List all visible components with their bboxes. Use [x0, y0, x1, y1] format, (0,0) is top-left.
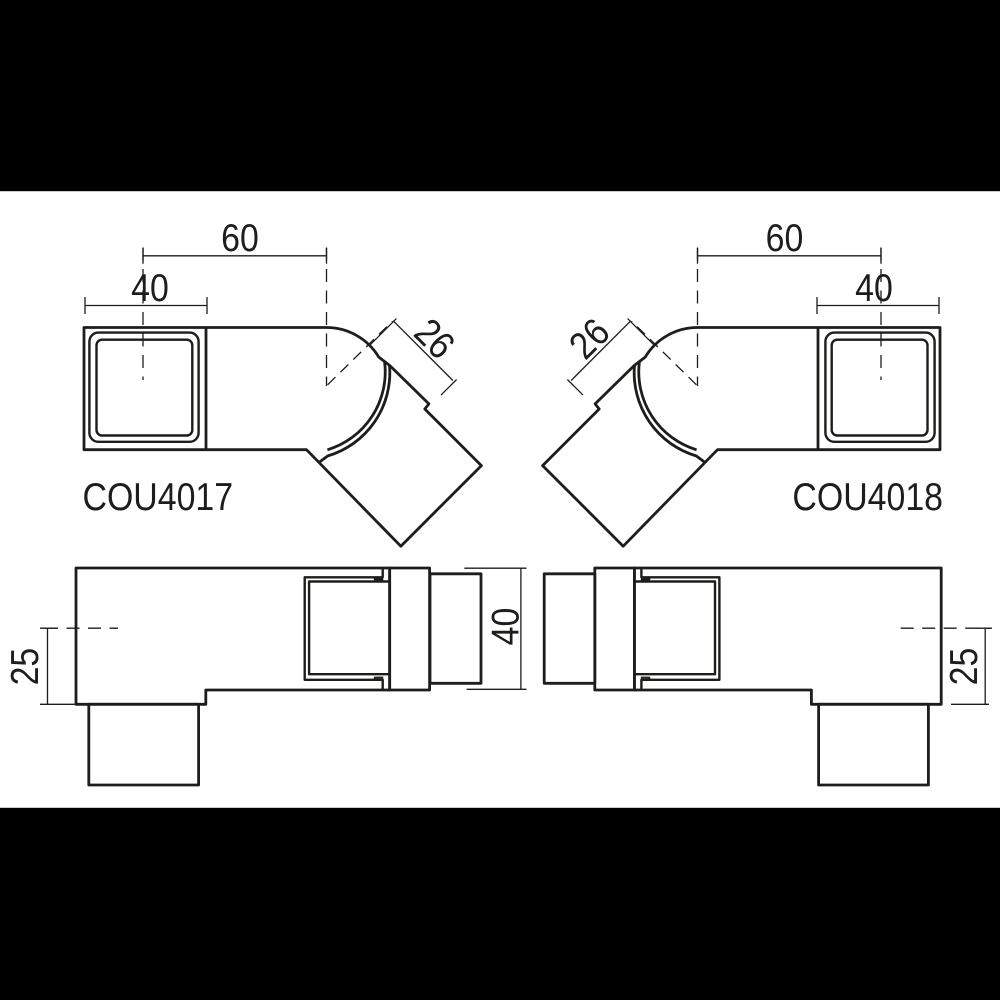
svg-text:40: 40 [131, 266, 169, 310]
svg-text:COU4018: COU4018 [792, 475, 943, 519]
svg-text:60: 60 [766, 216, 804, 260]
svg-text:25: 25 [942, 648, 986, 686]
svg-text:25: 25 [3, 648, 47, 686]
svg-text:60: 60 [221, 216, 259, 260]
svg-text:COU4017: COU4017 [83, 475, 234, 519]
svg-text:40: 40 [483, 608, 527, 646]
svg-text:40: 40 [855, 266, 893, 310]
